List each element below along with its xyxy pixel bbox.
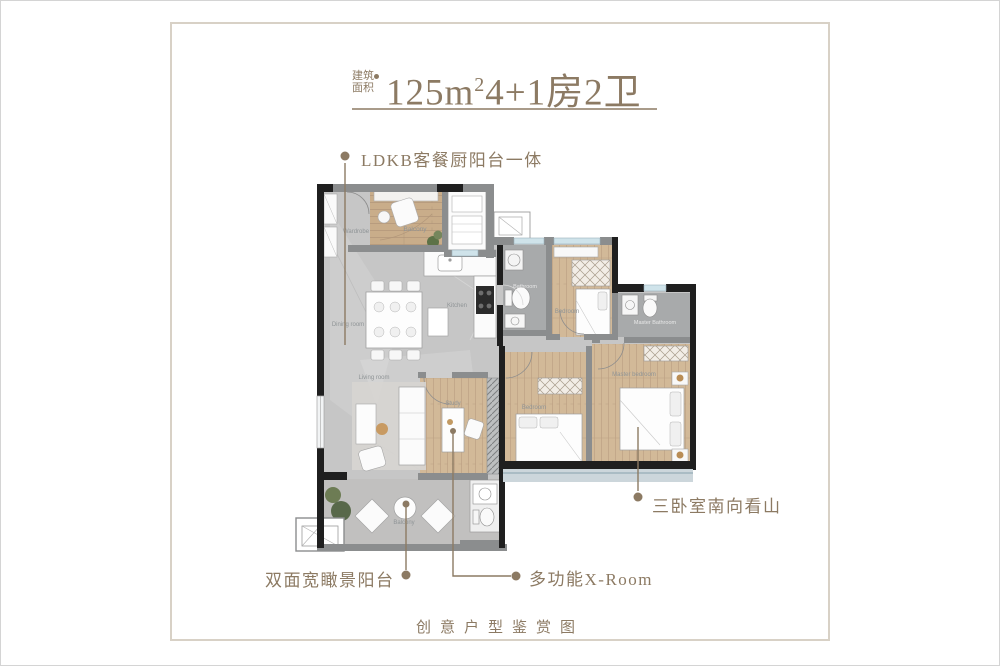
floorplan-drawing: Balcony Wardrobe — [0, 0, 1000, 666]
annotation-wide-balcony: 双面宽瞰景阳台 — [265, 566, 395, 591]
side-stool — [378, 211, 390, 223]
master-bathroom-label: Master Bathroom — [634, 320, 677, 326]
toilet-icon — [480, 508, 494, 526]
south-view-dot — [634, 493, 643, 502]
bedroom-south-label: Bedroom — [522, 405, 546, 411]
room-master-bathroom: Master Bathroom — [618, 293, 690, 337]
wardrobe-closet — [572, 260, 610, 286]
room-bedroom-south: Bedroom — [505, 352, 586, 462]
wardrobe-label: Wardrobe — [343, 229, 370, 235]
ac-platform-top — [494, 212, 530, 240]
kitchen-sink — [438, 255, 462, 271]
bathroom-label: Bathroom — [513, 284, 537, 290]
dining-label: Dining room — [332, 322, 364, 328]
dresser — [554, 247, 598, 257]
room-balcony-north: Balcony — [370, 190, 443, 248]
xroom-dot — [512, 572, 521, 581]
room-bathroom-2 — [470, 480, 500, 532]
sofa — [399, 387, 425, 465]
bath-sink — [473, 484, 497, 504]
bath-sink — [622, 295, 638, 315]
wardrobe-closet — [644, 346, 688, 361]
annotation-xroom: 多功能X-Room — [529, 565, 653, 590]
stove-icon — [476, 286, 494, 314]
fridge — [428, 308, 448, 336]
round-table — [394, 497, 416, 519]
ldkb-dot — [341, 152, 350, 161]
coffee-table — [376, 423, 388, 435]
bay-window-sill — [503, 469, 693, 482]
room-bedroom-north: Bedroom — [552, 245, 612, 337]
bedroom-north-label: Bedroom — [555, 309, 579, 315]
room-living: Living room — [352, 375, 426, 472]
page-caption: 创意户型鉴赏图 — [0, 616, 1000, 637]
room-master-bedroom: Master bedroom — [592, 343, 690, 462]
balcony-south-label: Balcony — [393, 520, 414, 526]
balcony-dot-top — [403, 501, 410, 508]
living-label: Living room — [358, 375, 389, 381]
floorplan-page: 建筑 面积 125m24+1房2卫 — [0, 0, 1000, 666]
toilet-icon — [643, 299, 657, 317]
annotation-ldkb: LDKB客餐厨阳台一体 — [361, 146, 543, 171]
kitchen-label: Kitchen — [447, 303, 467, 309]
study-label: Study — [445, 401, 460, 407]
duct-shaft — [487, 378, 499, 474]
xroom-dot-top — [450, 428, 456, 434]
annotation-south-view: 三卧室南向看山 — [652, 492, 782, 517]
master-bedroom-label: Master bedroom — [612, 372, 656, 378]
dining-table — [366, 292, 422, 348]
balcony-dot-bottom — [402, 571, 411, 580]
tv-console — [356, 404, 376, 444]
room-bathroom: Bathroom — [503, 245, 546, 333]
balcony-north-label: Balcony — [403, 226, 427, 233]
toilet-icon — [512, 287, 530, 309]
wardrobe-closet — [538, 378, 582, 394]
bath-sink — [505, 314, 525, 328]
utility-platform — [448, 190, 486, 250]
